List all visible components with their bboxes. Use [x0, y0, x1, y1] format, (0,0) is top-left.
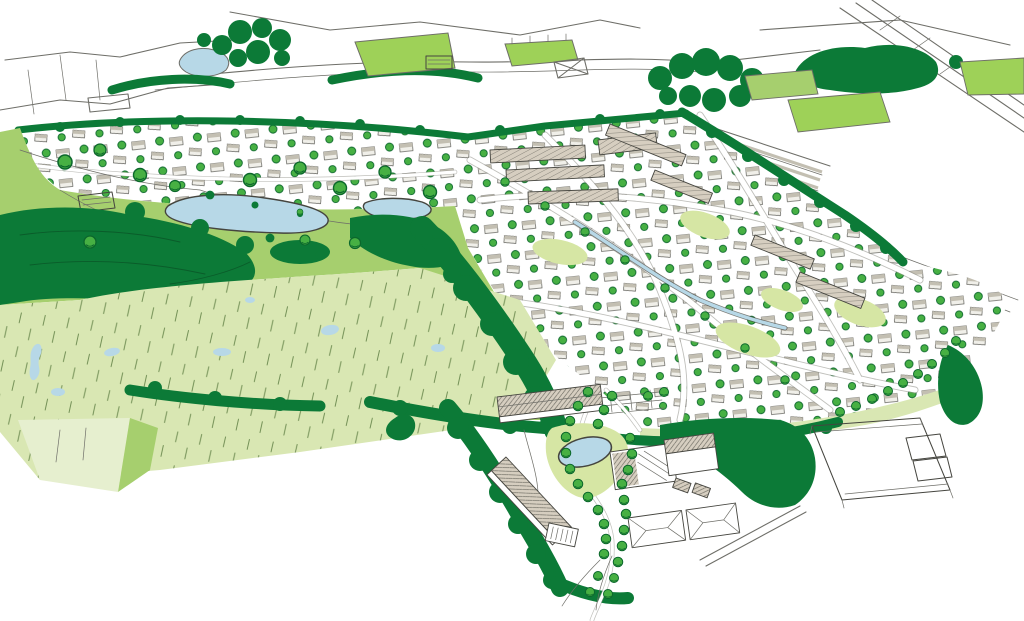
warehouse	[664, 433, 719, 476]
meadow-lower	[18, 418, 130, 492]
hip-roof-building	[686, 503, 740, 540]
masterplan-illustration	[0, 0, 1024, 621]
sports-pitches	[355, 33, 588, 78]
meadow-fields	[0, 268, 556, 560]
warehouse-annex	[545, 523, 578, 547]
hip-roof-building	[628, 510, 686, 547]
sheds	[673, 476, 711, 500]
existing-hedgerow-bands	[112, 71, 478, 90]
masterplan-canvas	[0, 0, 1024, 621]
